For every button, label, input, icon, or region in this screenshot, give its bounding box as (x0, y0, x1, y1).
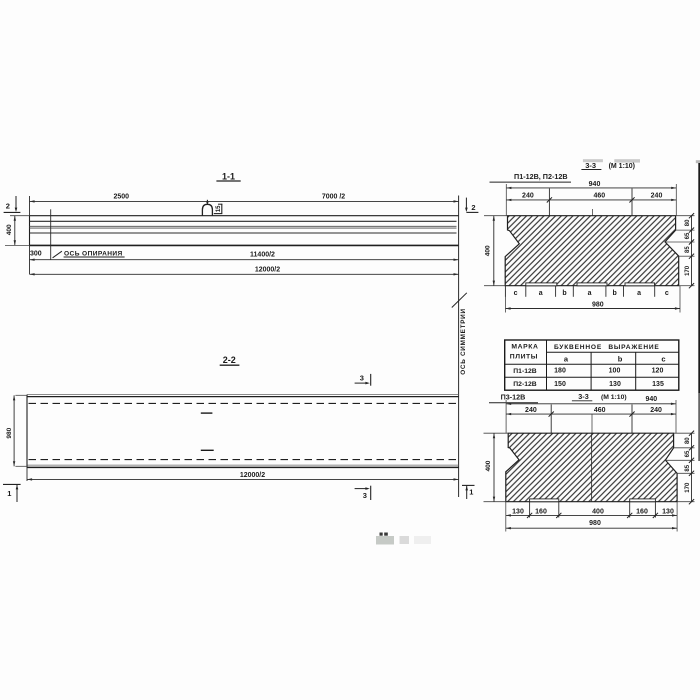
svg-text:150: 150 (554, 381, 566, 388)
svg-text:240: 240 (651, 193, 663, 200)
svg-text:80: 80 (685, 219, 691, 226)
svg-text:3-3: 3-3 (585, 161, 596, 170)
svg-text:240: 240 (525, 407, 537, 414)
svg-text:3-3: 3-3 (578, 392, 588, 401)
svg-text:ПЛИТЫ: ПЛИТЫ (510, 353, 538, 360)
svg-text:400: 400 (6, 224, 13, 235)
svg-text:400: 400 (485, 460, 492, 471)
svg-text:170: 170 (685, 265, 691, 276)
svg-text:3: 3 (363, 491, 367, 500)
svg-text:240: 240 (522, 193, 534, 200)
svg-text:П3-12В: П3-12В (501, 393, 526, 402)
svg-text:7000 /2: 7000 /2 (322, 193, 345, 200)
svg-text:b: b (613, 290, 617, 297)
svg-text:85: 85 (685, 464, 691, 471)
svg-text:П1-12В, П2-12В: П1-12В, П2-12В (514, 172, 567, 181)
svg-text:a: a (564, 355, 569, 364)
svg-text:a: a (637, 290, 641, 297)
svg-text:240: 240 (650, 407, 662, 414)
svg-text:300: 300 (30, 251, 42, 258)
svg-text:БУКВЕННОЕ: БУКВЕННОЕ (554, 344, 602, 351)
svg-text:2: 2 (471, 203, 475, 212)
svg-text:15: 15 (216, 205, 222, 212)
svg-text:(М 1:10): (М 1:10) (601, 394, 627, 401)
svg-text:b: b (562, 290, 566, 297)
svg-text:2500: 2500 (114, 193, 130, 200)
svg-text:ВЫРАЖЕНИЕ: ВЫРАЖЕНИЕ (608, 344, 659, 351)
svg-text:(М 1:10): (М 1:10) (609, 163, 635, 170)
svg-text:80: 80 (685, 437, 691, 444)
svg-text:160: 160 (636, 508, 648, 515)
svg-text:120: 120 (652, 367, 664, 374)
svg-text:130: 130 (609, 381, 621, 388)
svg-text:400: 400 (485, 245, 492, 256)
svg-text:2-2: 2-2 (223, 355, 236, 365)
svg-text:11400/2: 11400/2 (250, 251, 275, 258)
svg-text:980: 980 (592, 302, 604, 309)
svg-text:85: 85 (685, 246, 691, 253)
svg-text:940: 940 (645, 396, 657, 403)
svg-text:1-1: 1-1 (222, 172, 235, 182)
svg-text:100: 100 (609, 367, 621, 374)
svg-text:980: 980 (6, 427, 13, 438)
svg-text:130: 130 (512, 508, 524, 515)
svg-text:65: 65 (685, 450, 691, 457)
svg-text:460: 460 (594, 407, 606, 414)
svg-text:130: 130 (662, 508, 674, 515)
svg-text:1: 1 (7, 489, 11, 498)
svg-text:180: 180 (554, 367, 566, 374)
svg-text:c: c (661, 355, 665, 364)
svg-text:МАРКА: МАРКА (511, 344, 538, 351)
svg-text:2: 2 (6, 202, 10, 211)
svg-text:12000/2: 12000/2 (240, 472, 265, 479)
svg-text:135: 135 (652, 381, 664, 388)
svg-text:c: c (514, 290, 518, 297)
svg-text:460: 460 (593, 193, 605, 200)
svg-text:b: b (618, 355, 623, 364)
svg-text:160: 160 (535, 508, 547, 515)
svg-text:ОСЬ СИММЕТРИИ: ОСЬ СИММЕТРИИ (460, 308, 467, 375)
svg-text:a: a (588, 290, 592, 297)
svg-text:1: 1 (469, 488, 473, 497)
svg-text:c: c (665, 290, 669, 297)
svg-text:a: a (539, 290, 543, 297)
svg-text:980: 980 (589, 520, 601, 527)
svg-text:П1-12В: П1-12В (513, 368, 536, 375)
svg-text:12000/2: 12000/2 (255, 266, 280, 273)
svg-text:940: 940 (589, 181, 601, 188)
svg-text:П2-12В: П2-12В (513, 381, 536, 388)
svg-text:400: 400 (592, 508, 604, 515)
svg-text:65: 65 (685, 232, 691, 239)
svg-text:3: 3 (360, 373, 364, 382)
svg-text:170: 170 (685, 482, 691, 493)
